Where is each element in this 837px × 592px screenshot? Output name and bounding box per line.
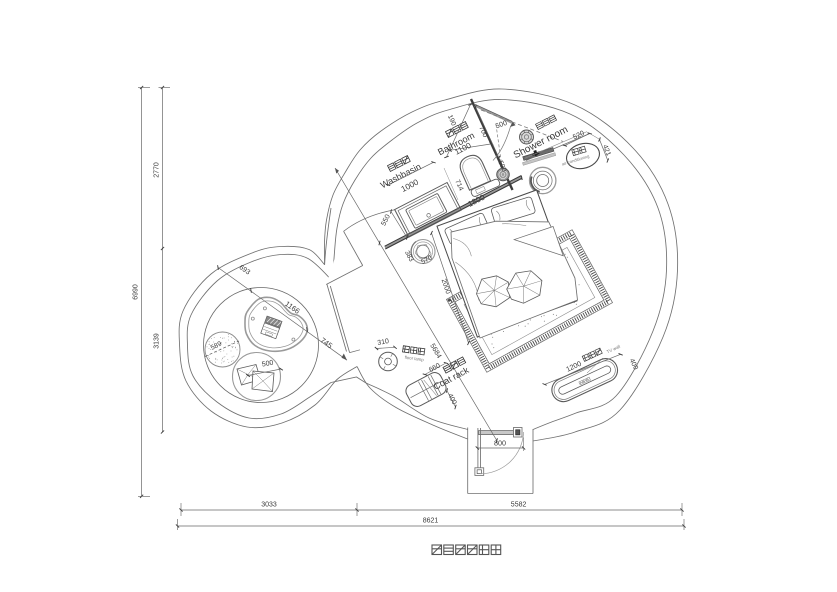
svg-text:700: 700 bbox=[477, 125, 488, 139]
svg-text:693: 693 bbox=[238, 264, 252, 276]
svg-text:310: 310 bbox=[377, 338, 390, 347]
svg-text:TV wall: TV wall bbox=[606, 344, 621, 355]
svg-text:190: 190 bbox=[446, 114, 457, 127]
svg-text:400: 400 bbox=[446, 393, 458, 406]
svg-text:3033: 3033 bbox=[261, 502, 277, 509]
svg-text:8621: 8621 bbox=[423, 518, 439, 525]
svg-text:520: 520 bbox=[572, 130, 586, 141]
svg-text:3139: 3139 bbox=[154, 333, 161, 349]
svg-text:2000: 2000 bbox=[440, 278, 452, 295]
svg-text:400: 400 bbox=[628, 358, 639, 371]
svg-text:floor lamp: floor lamp bbox=[404, 355, 424, 363]
svg-text:421: 421 bbox=[601, 144, 612, 157]
svg-text:500: 500 bbox=[495, 120, 508, 131]
svg-text:714: 714 bbox=[453, 179, 464, 192]
svg-text:6990: 6990 bbox=[133, 284, 140, 300]
svg-text:5582: 5582 bbox=[511, 502, 527, 509]
svg-text:550: 550 bbox=[380, 213, 392, 227]
svg-text:800: 800 bbox=[494, 438, 506, 447]
svg-text:383: 383 bbox=[403, 250, 414, 263]
svg-text:745: 745 bbox=[319, 336, 334, 351]
svg-text:air-conditioning: air-conditioning bbox=[561, 153, 590, 166]
svg-text:2770: 2770 bbox=[154, 162, 161, 178]
